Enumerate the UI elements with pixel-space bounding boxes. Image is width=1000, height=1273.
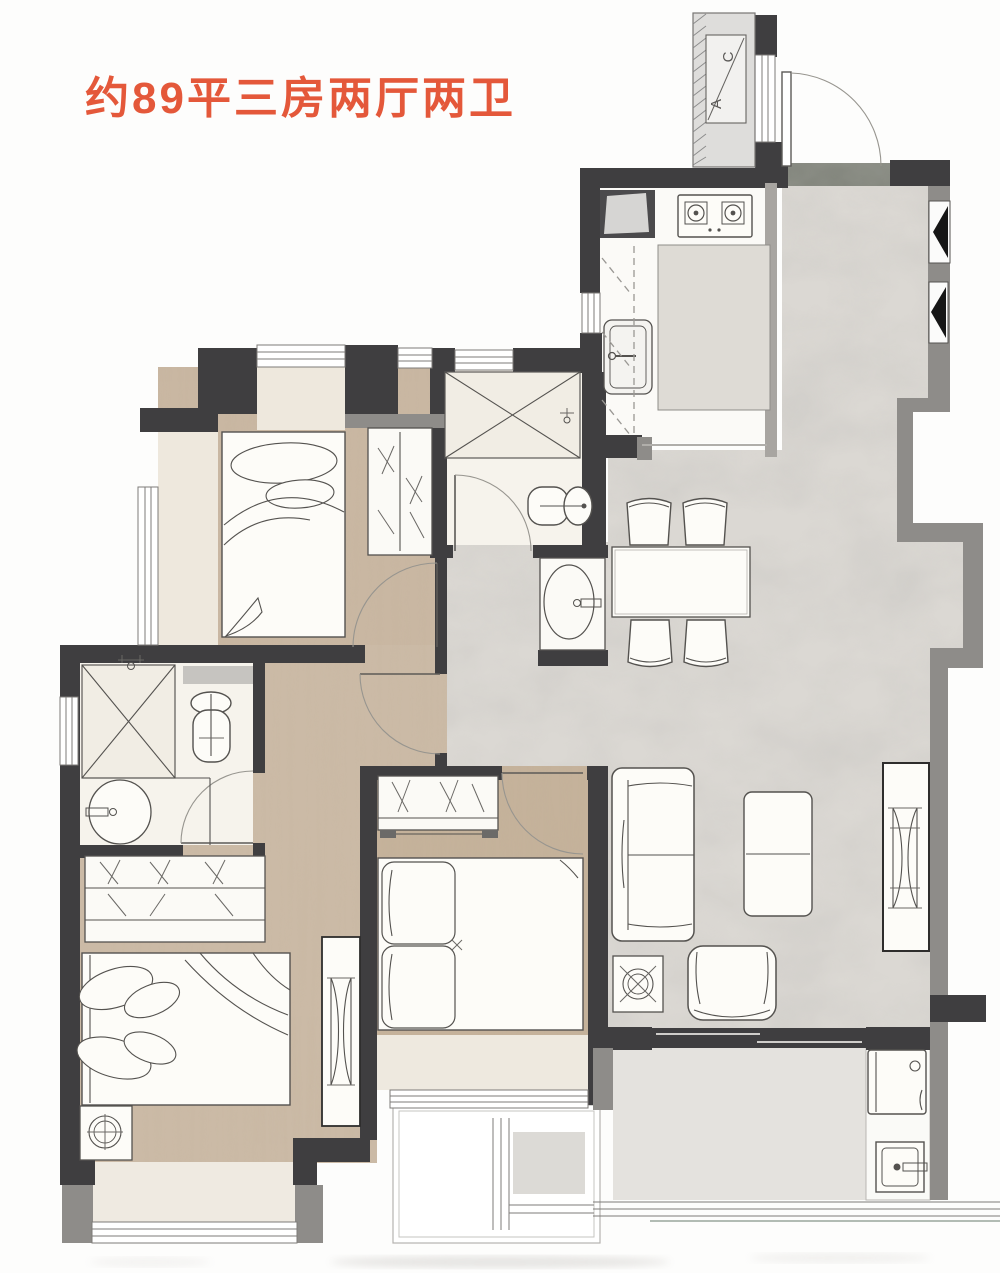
wall [930,668,948,995]
wall [866,1027,930,1050]
wall [897,398,950,412]
floor-plan: C A [0,0,1000,1273]
wall [538,650,608,666]
bed [378,858,583,1030]
nightstand [80,1106,132,1160]
balcony-railing [593,1202,1000,1221]
duct-shaft: C A [693,13,755,167]
shaft-label-c: C [720,51,737,62]
wall [533,545,608,558]
wall [963,542,983,648]
wall [593,1048,613,1110]
wall [580,168,788,188]
side-table [613,956,663,1012]
wardrobe [378,776,498,838]
wall [60,645,365,663]
bed [72,953,290,1105]
wardrobe [368,428,432,555]
wall [253,663,265,773]
master-bay-window [92,1222,297,1243]
stove [678,195,752,237]
dining-table [612,547,750,617]
bath-shelf [183,666,253,684]
washing-machine [868,1050,926,1114]
coffee-table [744,792,812,916]
wall [140,408,218,432]
bedroom2-top-window [257,345,345,367]
bedroom2-left-bay-sill [158,430,218,648]
dresser [322,937,360,1126]
dining-chair [684,620,728,667]
dining-chair [627,499,671,546]
bed [222,432,345,637]
lower-floor-window [513,1132,585,1194]
entry-door [782,72,881,166]
dining-chair [628,620,672,667]
shower-area [445,372,580,458]
wall [295,1185,323,1243]
wall-pillar [60,1158,95,1185]
armchair [688,946,776,1020]
balcony-sliding-door [650,1028,868,1048]
wall [345,414,447,428]
tv-cabinet [883,763,929,951]
wall [755,15,777,57]
shaft-label-a: A [708,99,725,109]
wall [430,348,455,372]
wall [600,1027,652,1050]
wall [62,1185,93,1243]
shower-area [82,655,175,778]
master-bath-window [60,697,78,765]
bedroom3-bay-window [390,1090,588,1108]
toilet [191,692,231,762]
wall [930,1022,948,1200]
wall [897,523,983,542]
wall-pillar [345,345,398,414]
wall-pillar [293,1158,317,1185]
bedroom3-bay-sill [377,1035,588,1090]
wall [930,648,983,668]
dining-chair [683,499,727,546]
entry-side-window [755,55,775,142]
vanity [540,558,605,650]
bedroom3-bay-projection [393,1105,600,1243]
wall [360,780,377,1140]
wall [890,160,950,186]
wall [930,995,986,1022]
wall [637,437,652,460]
wall [897,412,913,523]
kitchen-window [582,293,600,333]
toilet [528,487,592,525]
sofa [612,768,694,941]
wall [587,766,608,780]
wardrobe [85,856,265,942]
photo-artifacts [90,1253,930,1268]
page-title: 约89平三房两厅两卫 [85,74,516,123]
wall [580,188,600,293]
wall [580,333,602,373]
master-bay-sill [93,1162,295,1222]
closet-nook-window [398,348,432,368]
wall-pillar [198,348,257,414]
kitchen-sink [604,320,652,394]
bedroom2-top-bay-sill [257,367,345,430]
laundry-sink [876,1142,927,1192]
bedroom2-left-window [138,487,158,645]
fridge [600,190,655,238]
guest-bath-window [455,350,513,370]
wall [590,435,642,458]
kitchen-island [658,245,770,410]
wall [513,348,582,372]
